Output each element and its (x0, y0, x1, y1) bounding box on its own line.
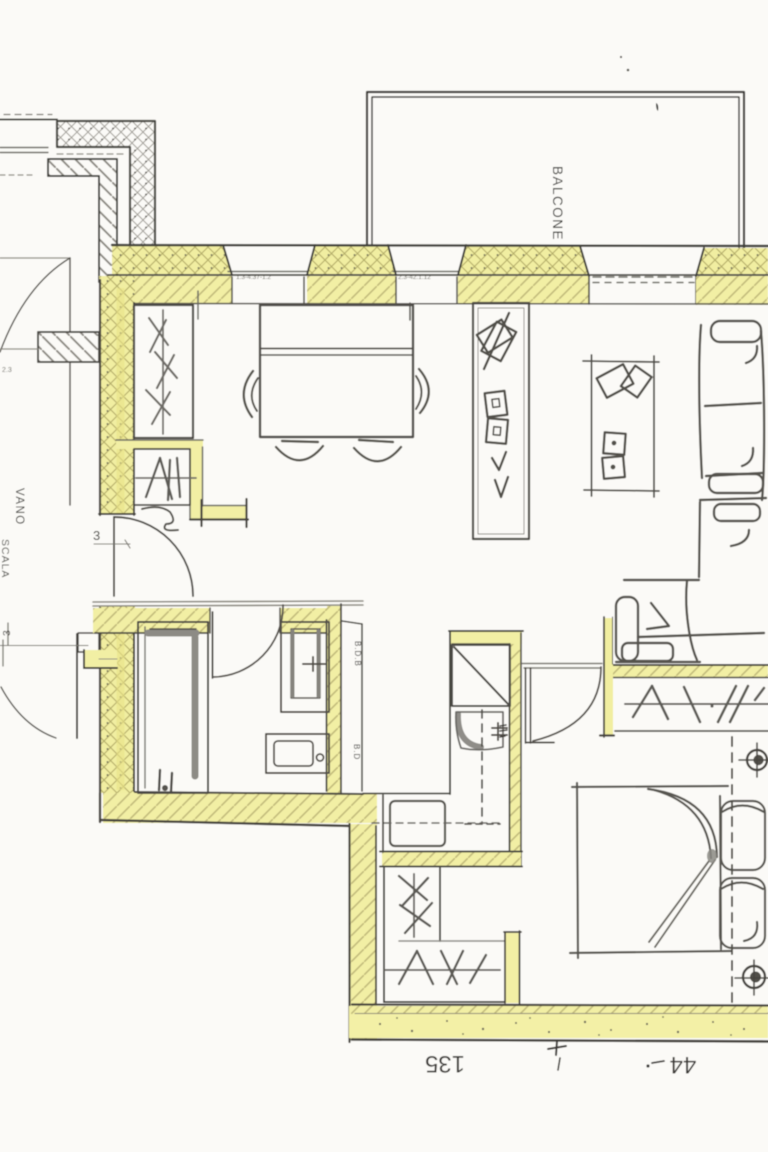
svg-text:2.3: 2.3 (2, 367, 12, 374)
svg-text:BALCONE: BALCONE (550, 166, 565, 241)
svg-text:44: 44 (670, 1051, 697, 1078)
svg-text:VANO: VANO (13, 488, 25, 526)
svg-text:SCALA: SCALA (0, 539, 11, 578)
svg-text:3: 3 (1, 630, 13, 636)
svg-text:B.D.B: B.D.B (353, 641, 362, 667)
svg-text:3: 3 (93, 528, 100, 543)
svg-text:135: 135 (425, 1050, 465, 1077)
svg-text:B.D: B.D (352, 744, 361, 760)
